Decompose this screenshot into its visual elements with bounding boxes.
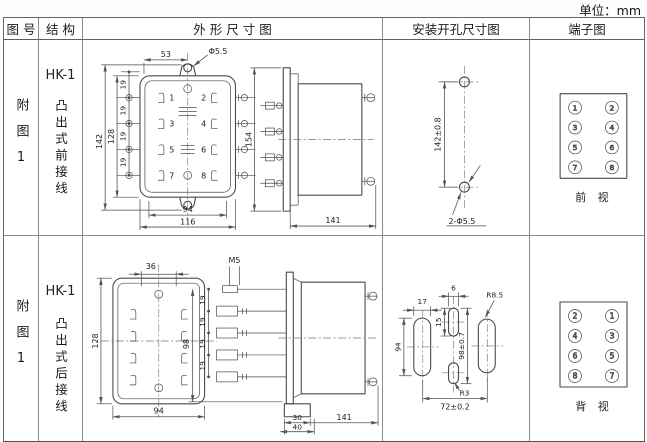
terminal-number: 5 <box>169 145 174 154</box>
front-mounting-holes-drawing: 142±0.8 2-Φ5.5 <box>383 40 529 235</box>
terminal-number: 4 <box>201 120 206 129</box>
rear-mounting-holes-drawing: 17 94 6 15 98±0.7 R8.5 <box>383 236 529 441</box>
fig-no-label: 附图1 <box>12 299 31 379</box>
dim-6: 6 <box>451 283 456 292</box>
terminal-circle-number: 2 <box>573 312 578 321</box>
row1-mounting-cell: 142±0.8 2-Φ5.5 <box>383 40 530 236</box>
dim-phi55: Φ5.5 <box>209 47 228 56</box>
header-terminals: 端子图 <box>530 18 644 40</box>
mounting-dimensions: 17 94 6 15 98±0.7 R8.5 <box>393 283 503 411</box>
dim-141: 141 <box>325 216 340 225</box>
row1-outline-cell: 1 2 3 4 5 6 7 8 53 <box>83 40 383 236</box>
row2-fig-no-cell: 附图1 <box>4 236 39 441</box>
dim-98: 98 <box>182 339 191 349</box>
terminal-circle-number: 3 <box>573 123 578 132</box>
dim-19: 19 <box>198 295 207 305</box>
row2-terminal-cell: 2 1 4 3 6 5 8 7 背 视 <box>530 236 644 441</box>
fig-no-label: 附图1 <box>12 98 31 178</box>
terminal-circle-number: 8 <box>609 163 614 172</box>
terminal-block-outline <box>560 94 627 179</box>
side-terminal-studs <box>260 94 374 187</box>
dimension-table: 图 号 结 构 外 形 尺 寸 图 安装开孔尺寸图 端子图 附图1 HK-1 凸… <box>3 17 645 442</box>
dim-19: 19 <box>119 106 128 116</box>
terminal-circle-number: 5 <box>610 352 615 361</box>
hk1-rear-wiring-outline-drawing: 36 128 94 M5 <box>83 236 382 441</box>
mounting-holes: 142±0.8 2-Φ5.5 <box>434 66 487 226</box>
header-outline: 外 形 尺 寸 图 <box>83 18 383 40</box>
row1-structure-cell: HK-1 凸出式前接线 <box>39 40 83 236</box>
dim-19: 19 <box>198 361 207 371</box>
dim-53: 53 <box>161 50 171 59</box>
model-label: HK-1 <box>46 68 76 83</box>
dim-m5: M5 <box>229 256 241 265</box>
terminal-diagram-front: 1 2 3 4 5 6 7 8 前 视 <box>530 40 644 235</box>
terminal-diagram-rear: 2 1 4 3 6 5 8 7 背 视 <box>530 236 644 441</box>
rear-mounting-studs <box>365 292 377 386</box>
terminal-studs <box>117 93 255 180</box>
terminal-circle-number: 7 <box>573 163 578 172</box>
view-caption: 前 视 <box>575 190 612 204</box>
datasheet-page: 单位：mm 图 号 结 构 外 形 尺 寸 图 安装开孔尺寸图 端子图 附图1 … <box>0 0 647 442</box>
dim-128: 128 <box>91 333 100 348</box>
dim-19: 19 <box>119 132 128 142</box>
dim-r3: R3 <box>459 389 469 398</box>
dim-19: 19 <box>119 157 128 167</box>
header-fig-no: 图 号 <box>4 18 39 40</box>
row2-outline-cell: 36 128 94 M5 <box>83 236 383 441</box>
dim-98-07: 98±0.7 <box>457 332 466 360</box>
dim-30: 30 <box>293 413 303 422</box>
dim-141: 141 <box>337 413 352 422</box>
dim-19: 19 <box>198 317 207 327</box>
dim-72-02: 72±0.2 <box>440 403 469 412</box>
terminal-number: 7 <box>169 171 174 180</box>
side-view-dimensions: 154 141 <box>244 68 375 229</box>
terminal-circle-number: 1 <box>610 312 615 321</box>
terminal-circle-number: 1 <box>573 103 578 112</box>
terminal-circle-number: 7 <box>610 372 615 381</box>
terminal-circle-number: 8 <box>573 372 578 381</box>
dim-r85: R8.5 <box>486 290 503 299</box>
row2-mounting-cell: 17 94 6 15 98±0.7 R8.5 <box>383 236 530 441</box>
rear-side-view: M5 19 19 19 19 <box>182 256 378 434</box>
terminal-circle-number: 3 <box>610 332 615 341</box>
terminal-circle-number: 2 <box>609 103 614 112</box>
row1-fig-no-cell: 附图1 <box>4 40 39 236</box>
header-structure: 结 构 <box>39 18 83 40</box>
front-view: 1 2 3 4 5 6 7 8 53 <box>95 47 255 230</box>
terminal-numbers: 1 2 3 4 5 6 7 8 <box>169 94 206 181</box>
dim-142: 142 <box>95 134 104 149</box>
view-caption: 背 视 <box>575 399 613 413</box>
terminal-circle-number: 4 <box>573 332 578 341</box>
rear-bottom-dimensions: 30 141 40 <box>280 386 378 435</box>
dim-36: 36 <box>146 262 156 271</box>
row2-structure-cell: HK-1 凸出式后接线 <box>39 236 83 441</box>
dim-94: 94 <box>393 342 402 352</box>
terminal-circle-number: 4 <box>609 123 614 132</box>
dim-94: 94 <box>154 407 164 416</box>
terminal-block-outline <box>560 302 627 387</box>
dim-142-08: 142±0.8 <box>434 117 443 151</box>
structure-desc: 凸出式后接线 <box>51 317 70 416</box>
row1-terminal-cell: 1 2 3 4 5 6 7 8 前 视 <box>530 40 644 236</box>
dim-154: 154 <box>244 132 253 147</box>
dim-116: 116 <box>180 218 195 227</box>
hk1-front-wiring-outline-drawing: 1 2 3 4 5 6 7 8 53 <box>83 40 382 235</box>
terminal-number: 3 <box>169 120 174 129</box>
dim-128: 128 <box>107 129 116 144</box>
header-mounting: 安装开孔尺寸图 <box>383 18 530 40</box>
terminal-circle-number: 6 <box>573 352 578 361</box>
model-label: HK-1 <box>46 284 76 299</box>
terminal-number: 1 <box>169 94 174 103</box>
rear-side-dimensions: 19 19 19 19 98 <box>182 288 282 402</box>
terminal-circle-number: 5 <box>573 143 578 152</box>
dim-19: 19 <box>198 339 207 349</box>
terminal-circles: 1 2 3 4 5 6 7 8 <box>569 101 619 174</box>
dim-15: 15 <box>434 317 443 327</box>
side-view: 154 141 <box>244 68 375 229</box>
holes-label: 2-Φ5.5 <box>449 217 476 226</box>
dim-40: 40 <box>293 423 303 432</box>
dim-19: 19 <box>119 80 128 90</box>
structure-desc: 凸出式前接线 <box>51 99 70 198</box>
dim-94: 94 <box>183 205 193 214</box>
dim-17: 17 <box>417 297 427 306</box>
rear-studs <box>217 286 287 382</box>
terminal-number: 6 <box>201 145 206 154</box>
terminal-number: 8 <box>201 171 206 180</box>
front-view-dimensions: 53 Φ5.5 142 128 19 19 <box>95 47 235 230</box>
terminal-number: 2 <box>201 94 206 103</box>
terminal-circle-number: 6 <box>609 143 614 152</box>
terminal-circles: 2 1 4 3 6 5 8 7 <box>569 310 619 383</box>
